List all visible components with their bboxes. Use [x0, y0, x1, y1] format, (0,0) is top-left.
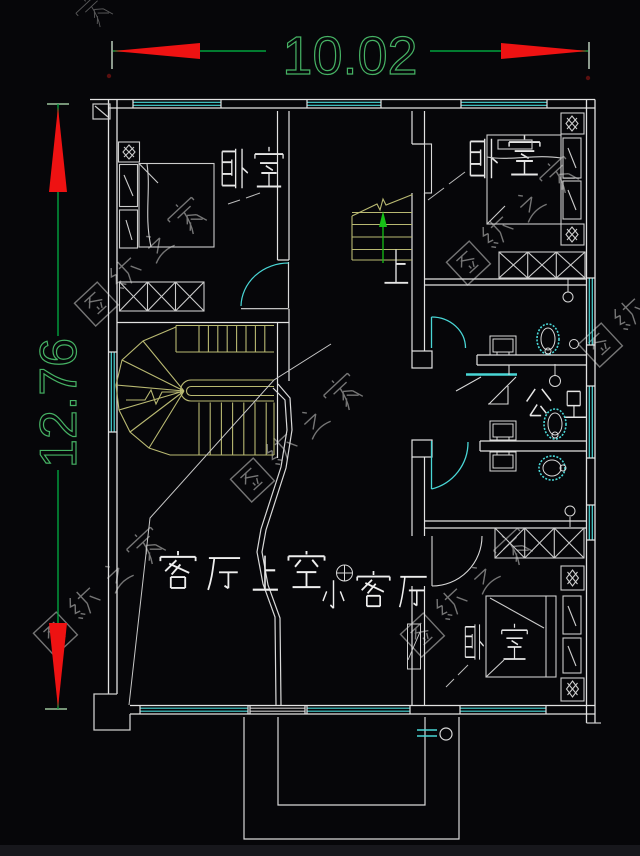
svg-text:12.76: 12.76: [30, 338, 88, 468]
svg-text:10.02: 10.02: [282, 26, 417, 86]
